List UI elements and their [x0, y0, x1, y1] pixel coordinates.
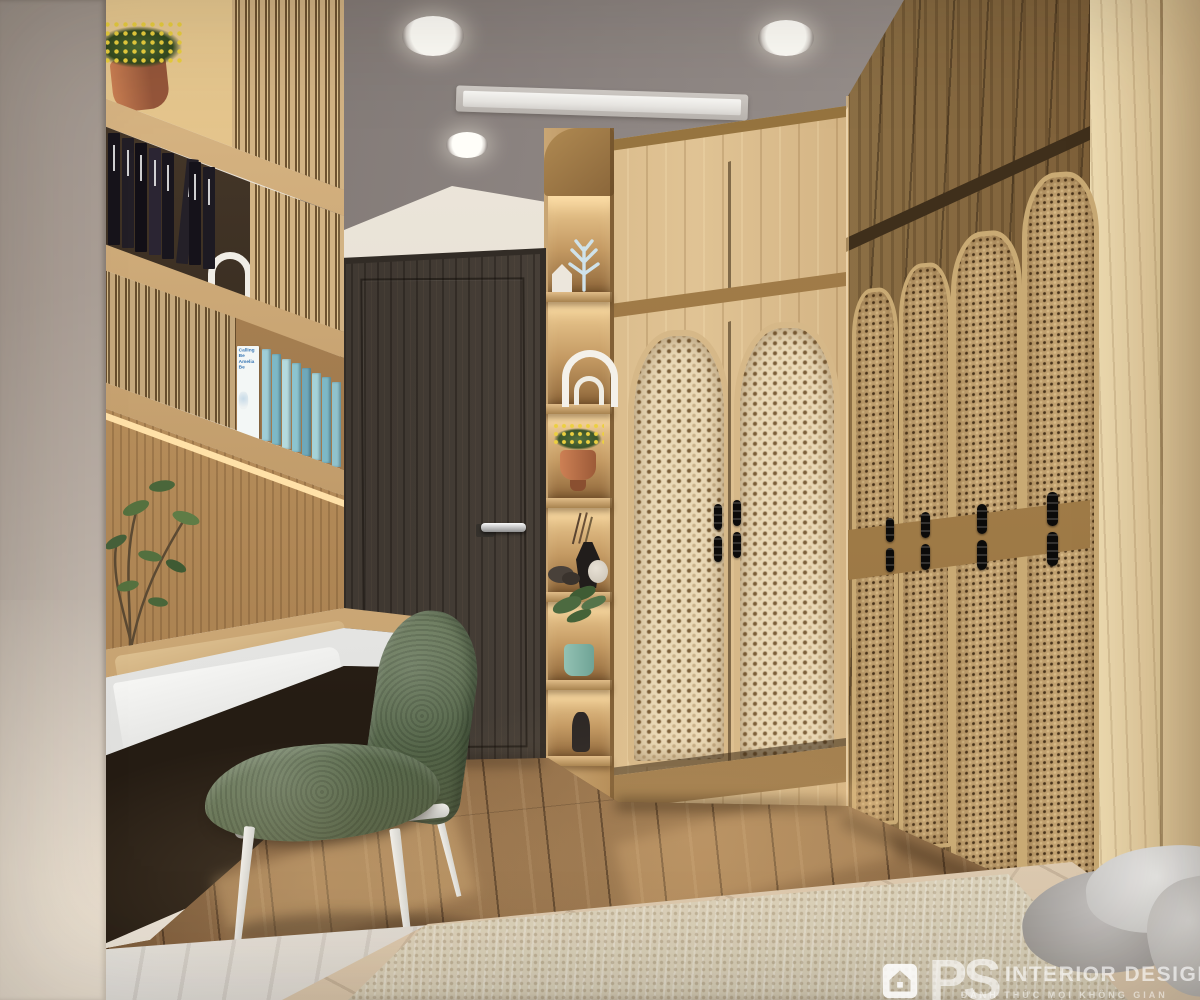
- book-spine: [312, 373, 321, 460]
- spine-label-mark: [140, 155, 142, 181]
- corner-shelf-column: [544, 128, 614, 804]
- corner-right-seam: [610, 128, 614, 804]
- door-bead-handle[interactable]: [977, 540, 987, 570]
- book-spine: [135, 143, 147, 252]
- desk-plant: [92, 416, 242, 666]
- book-spine: [322, 377, 331, 463]
- watermark-brand: INTERIOR DESIGN: [1005, 963, 1200, 987]
- book-spine: [332, 382, 341, 467]
- ceiling-downlight: [446, 132, 488, 158]
- book-spine: [272, 354, 281, 445]
- door-bead-handle[interactable]: [1047, 532, 1058, 566]
- spine-label-mark: [194, 174, 196, 200]
- door-bead-handle[interactable]: [977, 504, 987, 534]
- spine-label-mark: [208, 179, 210, 205]
- spine-label-mark: [127, 150, 129, 176]
- book-spine: [189, 162, 201, 265]
- corner-shelf-board: [540, 680, 612, 690]
- door-bead-handle[interactable]: [1047, 492, 1058, 526]
- book-spine: [262, 349, 271, 441]
- door-bead-handle[interactable]: [921, 544, 930, 570]
- book-spine: [203, 167, 215, 269]
- coral-stone: [588, 560, 608, 583]
- terracotta-pot-foot: [570, 480, 586, 491]
- house-logo-icon: [881, 962, 919, 1000]
- book-spine: [122, 138, 134, 249]
- door-bead-handle[interactable]: [733, 532, 741, 558]
- terracotta-pot: [560, 450, 596, 480]
- book-spine: [162, 153, 174, 259]
- yellow-flowers-top: [94, 20, 186, 66]
- interior-render-scene: Calling Be Amelia Be: [0, 0, 1200, 1000]
- door-bead-handle[interactable]: [921, 512, 930, 538]
- small-bottle: [572, 712, 590, 752]
- stone-dark: [562, 572, 580, 585]
- door-bead-handle[interactable]: [886, 548, 894, 572]
- book-spine: [149, 148, 161, 256]
- foreground-wall: [0, 0, 106, 1000]
- corner-cap: [544, 128, 614, 196]
- door-bead-handle[interactable]: [733, 500, 741, 526]
- wardrobe-right-edge-light: [846, 96, 849, 812]
- corner-shelf-board: [540, 292, 612, 302]
- book-spine: [282, 359, 291, 449]
- watermark-tagline: ĐÁNH THỨC MỌI KHÔNG GIAN: [961, 990, 1200, 1000]
- watermark: PS INTERIOR DESIGN ĐÁNH THỨC MỌI KHÔNG G…: [881, 952, 1200, 1000]
- door-handle[interactable]: [481, 523, 526, 532]
- ceiling-downlight: [758, 20, 814, 56]
- book-cover-title: Calling Be Amelia Be: [237, 346, 255, 409]
- corner-shelf-board: [540, 498, 612, 508]
- door-bead-handle[interactable]: [714, 536, 722, 562]
- rattan-door-panel-center[interactable]: [734, 321, 840, 766]
- vent-slot: [463, 91, 741, 116]
- yellow-flowers: [552, 422, 604, 446]
- rainbow-decor-inner: [574, 376, 604, 405]
- tree-ornament: [564, 234, 604, 292]
- spine-label-mark: [154, 160, 156, 186]
- wall-light-streak: [0, 600, 106, 1000]
- ceiling-downlight: [402, 16, 464, 56]
- teal-pot: [564, 644, 594, 676]
- spine-label-mark: [113, 145, 115, 171]
- door-bead-handle[interactable]: [886, 518, 894, 542]
- door-bead-handle[interactable]: [714, 504, 722, 530]
- book-spine: [302, 368, 311, 456]
- spine-label-mark: [167, 165, 169, 191]
- book-spine: [108, 133, 120, 245]
- book-spine: [292, 363, 301, 452]
